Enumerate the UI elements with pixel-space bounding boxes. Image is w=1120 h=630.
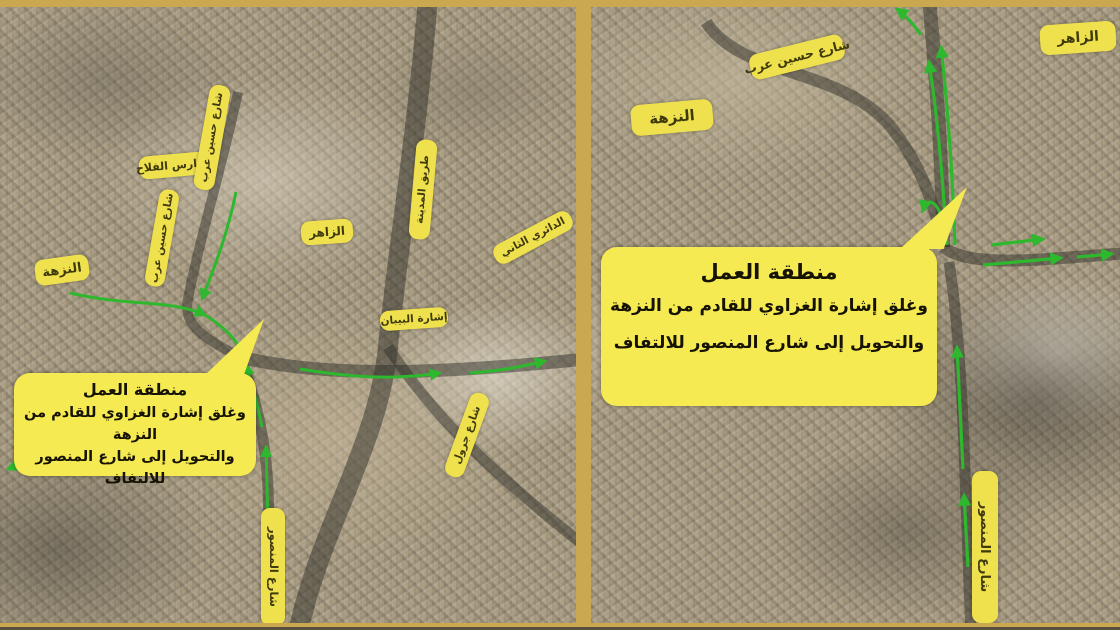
diversion-arrow xyxy=(897,9,921,35)
traffic-diversion-map: مدارس الفلاحشارع حسين عربشارع حسين عربال… xyxy=(0,0,1120,630)
work-zone-callout-right: منطقة العمل وغلق إشارة الغزاوي للقادم من… xyxy=(601,247,937,406)
work-zone-callout-line: النزهة xyxy=(14,424,256,446)
work-zone-callout-line: والتحويل إلى شارع المنصور للالتفاف xyxy=(601,325,937,362)
panel-divider xyxy=(576,0,591,630)
work-zone-callout-line: والتحويل إلى شارع المنصور للالتفاف xyxy=(14,446,256,490)
work-zone-title: منطقة العمل xyxy=(601,256,937,288)
mansour-street-label: شارع المنصور xyxy=(261,508,285,623)
left-map-panel: مدارس الفلاحشارع حسين عربشارع حسين عربال… xyxy=(0,7,576,623)
diversion-arrow xyxy=(991,239,1043,245)
nuzha-district-label: النزهة xyxy=(630,98,714,136)
zahir-district-label: الزاهر xyxy=(1039,20,1117,55)
mansour-street-label: شارع المنصور xyxy=(972,471,998,623)
work-zone-callout-left: منطقة العمل وغلق إشارة الغزاوي للقادم من… xyxy=(14,373,256,476)
right-map-panel: شارع حسين عربالنزهةالزاهرشارع المنصور من… xyxy=(591,7,1120,623)
zahir-district-label: الزاهر xyxy=(300,218,354,246)
east-road xyxy=(943,247,1120,261)
work-zone-callout-line: وغلق إشارة الغزاوي للقادم من النزهة xyxy=(601,288,937,325)
mansour-road xyxy=(949,262,971,623)
work-zone-title: منطقة العمل xyxy=(14,378,256,402)
left-roads-arrows-overlay xyxy=(0,7,576,623)
work-zone-callout-line: وغلق إشارة الغزاوي للقادم من xyxy=(14,402,256,424)
